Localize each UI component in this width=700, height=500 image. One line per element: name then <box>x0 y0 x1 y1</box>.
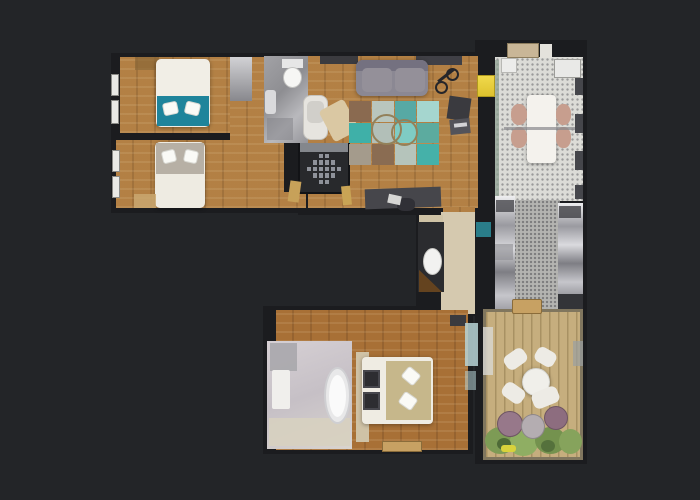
glass-door-artifact <box>465 371 476 390</box>
wc-toilet <box>423 248 442 275</box>
patchwork-rug-cell <box>349 101 371 122</box>
sofa-cushion <box>362 68 392 92</box>
terrace-white-edge <box>483 327 493 375</box>
shower-mosaic-tiles-cell <box>325 167 329 171</box>
bathroom1-shower-mat <box>267 118 293 140</box>
shower-mosaic-tiles-cell <box>313 167 317 171</box>
shower-mosaic-tiles-cell <box>319 154 323 158</box>
patchwork-rug-cell <box>349 123 371 144</box>
sofa-cushion <box>395 68 425 92</box>
balcony-post <box>540 44 552 58</box>
gold-fixture <box>341 186 352 206</box>
radiator <box>575 151 583 170</box>
glass-door-artifact <box>465 323 478 366</box>
bicycle-wheel <box>435 81 448 94</box>
bathroom2-shower <box>270 343 297 371</box>
teal-appliance <box>476 222 491 237</box>
bathtub-inner <box>329 375 346 417</box>
shower-mosaic-tiles-cell <box>313 173 317 177</box>
bedroom2-door-mat <box>134 194 156 208</box>
radiator <box>575 114 583 133</box>
radiator <box>575 78 583 95</box>
shower-mosaic-tiles-cell <box>325 180 329 184</box>
dining-left-wall <box>495 60 499 196</box>
bedroom3-door-mat <box>382 441 422 452</box>
window-sill <box>112 150 120 172</box>
bed2-pillow <box>183 149 199 165</box>
patchwork-rug-cell <box>417 123 439 144</box>
shower-mosaic-tiles-cell <box>307 167 311 171</box>
bed3-dark-panel <box>363 392 380 410</box>
kitchen-floor <box>513 200 560 313</box>
plant <box>559 429 582 454</box>
toilet-bowl <box>283 67 302 88</box>
hall-tile-floor <box>441 212 475 314</box>
balcony-ledge <box>507 43 539 58</box>
dining-chair <box>511 127 527 148</box>
bathroom2-vanity <box>272 370 290 409</box>
patchwork-rug-cell <box>417 144 439 165</box>
coffee-table-ring <box>391 119 418 146</box>
window-sill <box>112 176 120 198</box>
pouf-mauve <box>497 411 523 437</box>
window-sill <box>111 100 119 124</box>
radiator <box>575 185 583 199</box>
shower-mosaic-tiles-cell <box>319 160 323 164</box>
shower-mosaic-tiles-cell <box>325 160 329 164</box>
dining-chair <box>556 127 571 148</box>
hallway-wardrobe <box>230 57 252 101</box>
shower-mosaic-tiles-cell <box>325 154 329 158</box>
dining-chair <box>511 104 527 125</box>
kitchen-door-mat <box>512 299 542 314</box>
shower-mosaic-tiles-cell <box>337 167 341 171</box>
patchwork-rug-cell <box>395 144 417 165</box>
yellow-cabinet <box>477 75 495 97</box>
scan-rail-artifact <box>504 127 578 130</box>
bed3-dark-panel <box>363 370 380 388</box>
shower-mosaic-tiles-cell <box>331 173 335 177</box>
pouf-mauve <box>544 406 568 430</box>
floorplan-viewer <box>0 0 700 500</box>
shower-mosaic-tiles <box>307 154 341 184</box>
terrace-grey-edge <box>573 341 583 366</box>
shower-mosaic-tiles-cell <box>313 160 317 164</box>
kitchen-appliance-grey <box>495 244 513 260</box>
dining-fridge <box>554 59 581 78</box>
kitchen-appliance-dark <box>559 206 581 218</box>
dining-chair <box>556 104 571 125</box>
yellow-planter <box>501 445 516 452</box>
floorplan-image[interactable] <box>0 0 700 500</box>
shower-mosaic-tiles-cell <box>331 167 335 171</box>
patchwork-rug-cell <box>417 101 439 122</box>
shower-mosaic-tiles-cell <box>331 160 335 164</box>
wall-shelf <box>320 56 358 64</box>
bathroom1-sink <box>265 90 276 114</box>
patchwork-rug-cell <box>349 144 371 165</box>
pouf-grey <box>521 414 545 439</box>
window-sill <box>111 74 119 96</box>
plant-dark <box>541 440 555 452</box>
shower-vanity <box>300 143 348 152</box>
shower-mosaic-tiles-cell <box>319 167 323 171</box>
patchwork-rug-cell <box>372 144 394 165</box>
kitchen-hob-dark <box>496 200 514 212</box>
shower-mosaic-tiles-cell <box>325 173 329 177</box>
bedroom3-dark-item <box>450 315 466 326</box>
shower-mosaic-tiles-cell <box>319 173 323 177</box>
dining-cabinet <box>501 58 517 73</box>
shower-mosaic-tiles-cell <box>319 180 323 184</box>
